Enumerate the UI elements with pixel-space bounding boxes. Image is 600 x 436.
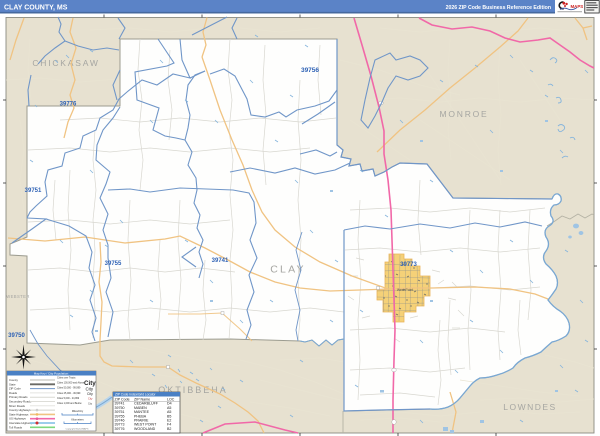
svg-text:Miles/City: Miles/City — [72, 409, 84, 413]
svg-text:B2: B2 — [167, 427, 171, 431]
svg-text:WOODLAND: WOODLAND — [134, 427, 156, 431]
svg-text:Cities 50,000 - 99,999: Cities 50,000 - 99,999 — [57, 387, 81, 390]
svg-text:39776: 39776 — [115, 427, 125, 431]
svg-text:Cities 25,000 - 49,999: Cities 25,000 - 49,999 — [57, 392, 81, 395]
svg-text:Cities 5,000 - 24,999: Cities 5,000 - 24,999 — [57, 397, 80, 400]
svg-text:39773: 39773 — [400, 262, 417, 268]
svg-text:39756: 39756 — [301, 67, 319, 74]
svg-text:WEBSTER: WEBSTER — [6, 294, 30, 299]
svg-text:39741: 39741 — [212, 258, 229, 264]
svg-text:Toll Roads: Toll Roads — [9, 425, 23, 429]
svg-text:MAPS: MAPS — [571, 4, 584, 9]
svg-text:Kilometers: Kilometers — [71, 418, 84, 422]
svg-text:39751: 39751 — [25, 188, 42, 194]
svg-text:Cities 100,000 and Above: Cities 100,000 and Above — [57, 381, 85, 384]
svg-text:Map Key / City Population: Map Key / City Population — [34, 372, 69, 376]
svg-text:39755: 39755 — [105, 261, 122, 267]
svg-text:City: City — [88, 397, 93, 401]
svg-text:City: City — [87, 392, 93, 396]
svg-text:Cities 1,000 and Below: Cities 1,000 and Below — [57, 402, 82, 405]
svg-text:CLAY COUNTY, MS: CLAY COUNTY, MS — [4, 5, 68, 12]
svg-text:ZIP Code Index/Grid Locator: ZIP Code Index/Grid Locator — [115, 393, 156, 397]
svg-text:Copyright MarketMAPS: Copyright MarketMAPS — [66, 428, 89, 431]
svg-text:City: City — [86, 386, 94, 391]
svg-text:39750: 39750 — [8, 333, 25, 339]
svg-text:2026 ZIP Code Business Referen: 2026 ZIP Code Business Reference Edition — [446, 5, 551, 11]
svg-text:West Point: West Point — [397, 288, 413, 292]
svg-text:LOWNDES: LOWNDES — [503, 402, 556, 412]
svg-text:MONROE: MONROE — [439, 109, 488, 119]
svg-text:CLAY: CLAY — [270, 264, 305, 276]
svg-text:39776: 39776 — [60, 102, 77, 108]
svg-text:Cities over Tracts: Cities over Tracts — [57, 376, 76, 379]
